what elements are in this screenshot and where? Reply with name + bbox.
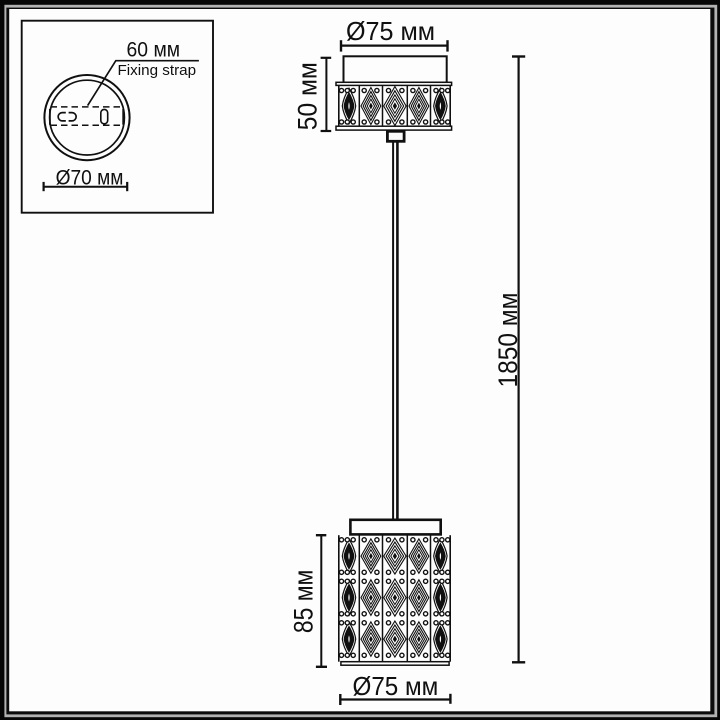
svg-text:Ø75 мм: Ø75 мм	[346, 16, 435, 46]
svg-text:60 мм: 60 мм	[127, 39, 181, 62]
svg-text:50 мм: 50 мм	[292, 62, 322, 130]
svg-text:85 мм: 85 мм	[288, 570, 318, 634]
svg-text:Fixing strap: Fixing strap	[118, 62, 197, 79]
svg-text:1850 мм: 1850 мм	[493, 293, 523, 388]
svg-text:Ø75 мм: Ø75 мм	[353, 671, 439, 701]
